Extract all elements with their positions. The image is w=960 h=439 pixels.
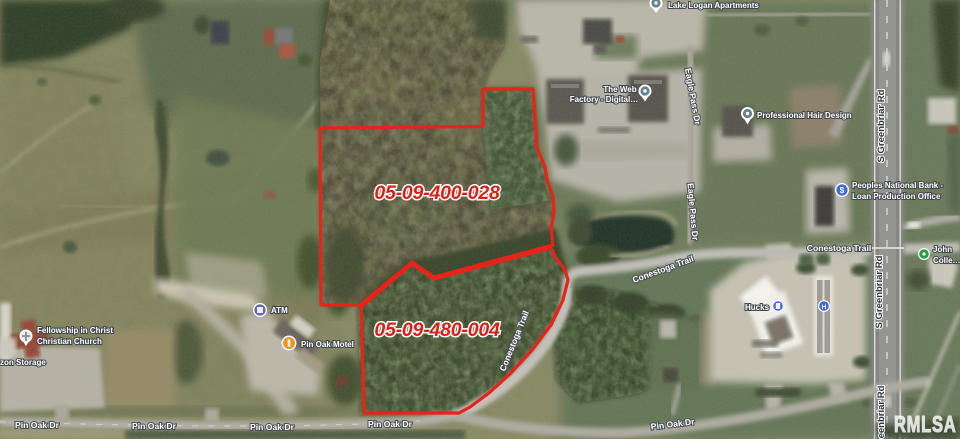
svg-text:RMLSA: RMLSA [894, 412, 956, 437]
svg-text:Lake Logan Apartments: Lake Logan Apartments [668, 1, 759, 10]
svg-text:Professional Hair Design: Professional Hair Design [757, 111, 852, 120]
svg-text:Pin Oak Dr: Pin Oak Dr [250, 422, 295, 432]
svg-text:H: H [822, 304, 827, 311]
svg-text:Loan Production Office: Loan Production Office [852, 192, 941, 201]
svg-text:Pin Oak Dr: Pin Oak Dr [15, 420, 60, 430]
svg-text:Pin Oak Motel: Pin Oak Motel [301, 340, 354, 349]
svg-text:Colle…: Colle… [933, 256, 960, 265]
svg-text:Fellowship in Christ: Fellowship in Christ [37, 326, 113, 335]
svg-text:eenbriar Rd: eenbriar Rd [876, 385, 887, 438]
svg-text:S Greenbriar Rd: S Greenbriar Rd [876, 89, 887, 162]
svg-text:05-09-400-028: 05-09-400-028 [374, 182, 500, 204]
svg-text:Factory - Digital…: Factory - Digital… [570, 95, 638, 104]
svg-text:Peoples National Bank -: Peoples National Bank - [852, 181, 943, 190]
svg-text:Hucks: Hucks [745, 303, 770, 312]
svg-text:zon Storage: zon Storage [0, 358, 46, 367]
svg-text:ATM: ATM [271, 306, 288, 315]
svg-text:Christian Church: Christian Church [37, 337, 102, 346]
svg-text:Conestoga Trail: Conestoga Trail [807, 243, 871, 253]
svg-text:S Greenbriar Rd: S Greenbriar Rd [874, 255, 885, 328]
svg-text:05-09-480-004: 05-09-480-004 [374, 319, 500, 341]
svg-text:The Web: The Web [603, 85, 636, 94]
svg-text:$: $ [840, 186, 845, 195]
svg-text:Pin Oak Dr: Pin Oak Dr [132, 421, 177, 431]
svg-text:Pin Oak Dr: Pin Oak Dr [368, 419, 413, 429]
svg-text:John: John [933, 245, 952, 254]
